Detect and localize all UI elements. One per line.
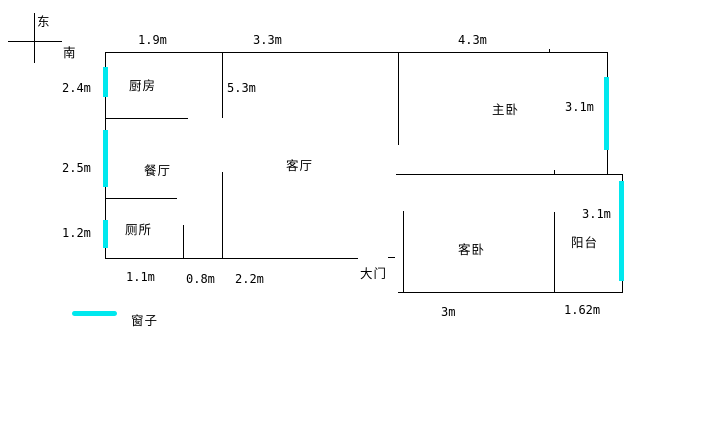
dim-bottom-living: 2.2m	[235, 272, 264, 286]
guest-left-wall	[403, 211, 404, 293]
top-wall	[105, 52, 607, 53]
toilet-window	[103, 220, 108, 248]
dim-living-depth: 5.3m	[227, 81, 256, 95]
window-legend-label: 窗子	[131, 310, 158, 329]
window-legend-swatch	[72, 311, 117, 316]
dim-left-toilet: 1.2m	[62, 226, 91, 240]
dim-balcony-window: 3.1m	[582, 207, 611, 221]
compass-vertical-line	[34, 13, 35, 63]
guest-bedroom-label: 客卧	[458, 239, 485, 258]
compass-south-label: 南	[63, 42, 77, 61]
floor-plan: 东 南 厨房 餐厅 厕所 客厅 主卧 客卧 阳台 大门 1.9m 3.3m 4.…	[0, 0, 701, 425]
kitchen-window	[103, 67, 108, 97]
dining-window	[103, 130, 108, 187]
dim-balcony-width: 1.62m	[564, 303, 600, 317]
mid-wall-tick	[554, 170, 555, 174]
living-room-label: 客厅	[286, 155, 313, 174]
dim-top-kitchen: 1.9m	[138, 33, 167, 47]
dim-top-living: 3.3m	[253, 33, 282, 47]
dim-top-master: 4.3m	[458, 33, 487, 47]
master-bedroom-window	[604, 77, 609, 150]
dim-bottom-toilet: 1.1m	[126, 270, 155, 284]
bottom-wall-left	[105, 258, 358, 259]
living-left-wall	[222, 172, 223, 258]
kitchen-right-wall	[222, 52, 223, 118]
top-wall-tick	[549, 49, 550, 52]
kitchen-label: 厨房	[129, 75, 156, 94]
master-left-wall	[398, 52, 399, 145]
toilet-label: 厕所	[125, 219, 152, 238]
balcony-window	[619, 181, 624, 281]
balcony-label: 阳台	[571, 232, 598, 251]
main-door-label: 大门	[360, 263, 387, 282]
dim-master-window: 3.1m	[565, 100, 594, 114]
kitchen-bottom-wall	[105, 118, 188, 119]
dining-bottom-wall	[105, 198, 177, 199]
guest-balcony-divider-wall	[554, 212, 555, 293]
compass-east-label: 东	[37, 11, 51, 30]
dim-bottom-toilet-door: 0.8m	[186, 272, 215, 286]
bottom-wall-right	[398, 292, 623, 293]
dining-label: 餐厅	[144, 160, 171, 179]
dim-guest-width: 3m	[441, 305, 455, 319]
dim-left-kitchen: 2.4m	[62, 81, 91, 95]
dim-left-dining: 2.5m	[62, 161, 91, 175]
door-side-wall-stub	[388, 257, 395, 258]
compass-horizontal-line	[8, 41, 62, 42]
master-bedroom-label: 主卧	[492, 99, 519, 118]
toilet-right-wall	[183, 225, 184, 259]
mid-horizontal-wall	[396, 174, 623, 175]
